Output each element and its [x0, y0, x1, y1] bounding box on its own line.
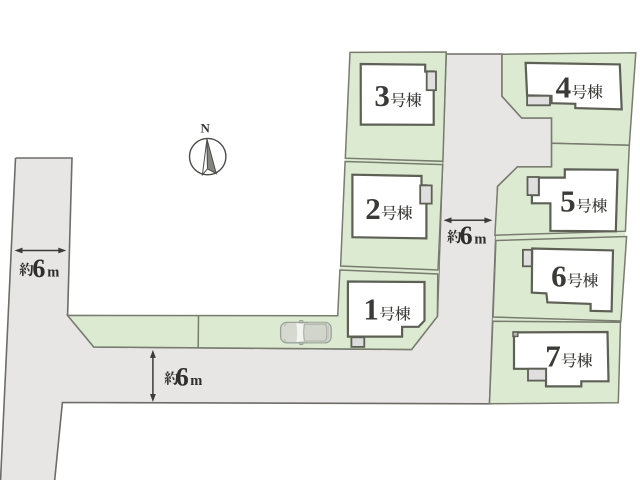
svg-text:7: 7	[545, 338, 561, 373]
svg-text:1: 1	[363, 292, 379, 327]
svg-text:4: 4	[556, 70, 572, 105]
svg-text:5: 5	[560, 184, 576, 219]
svg-text:m: m	[190, 373, 202, 389]
svg-text:6: 6	[32, 254, 45, 283]
svg-text:3: 3	[374, 78, 390, 113]
svg-text:2: 2	[365, 191, 381, 226]
svg-text:m: m	[474, 232, 486, 248]
svg-text:6: 6	[460, 221, 473, 250]
svg-text:m: m	[47, 264, 59, 280]
svg-text:6: 6	[176, 363, 189, 392]
svg-text:N: N	[201, 121, 211, 136]
svg-text:6: 6	[551, 258, 567, 293]
